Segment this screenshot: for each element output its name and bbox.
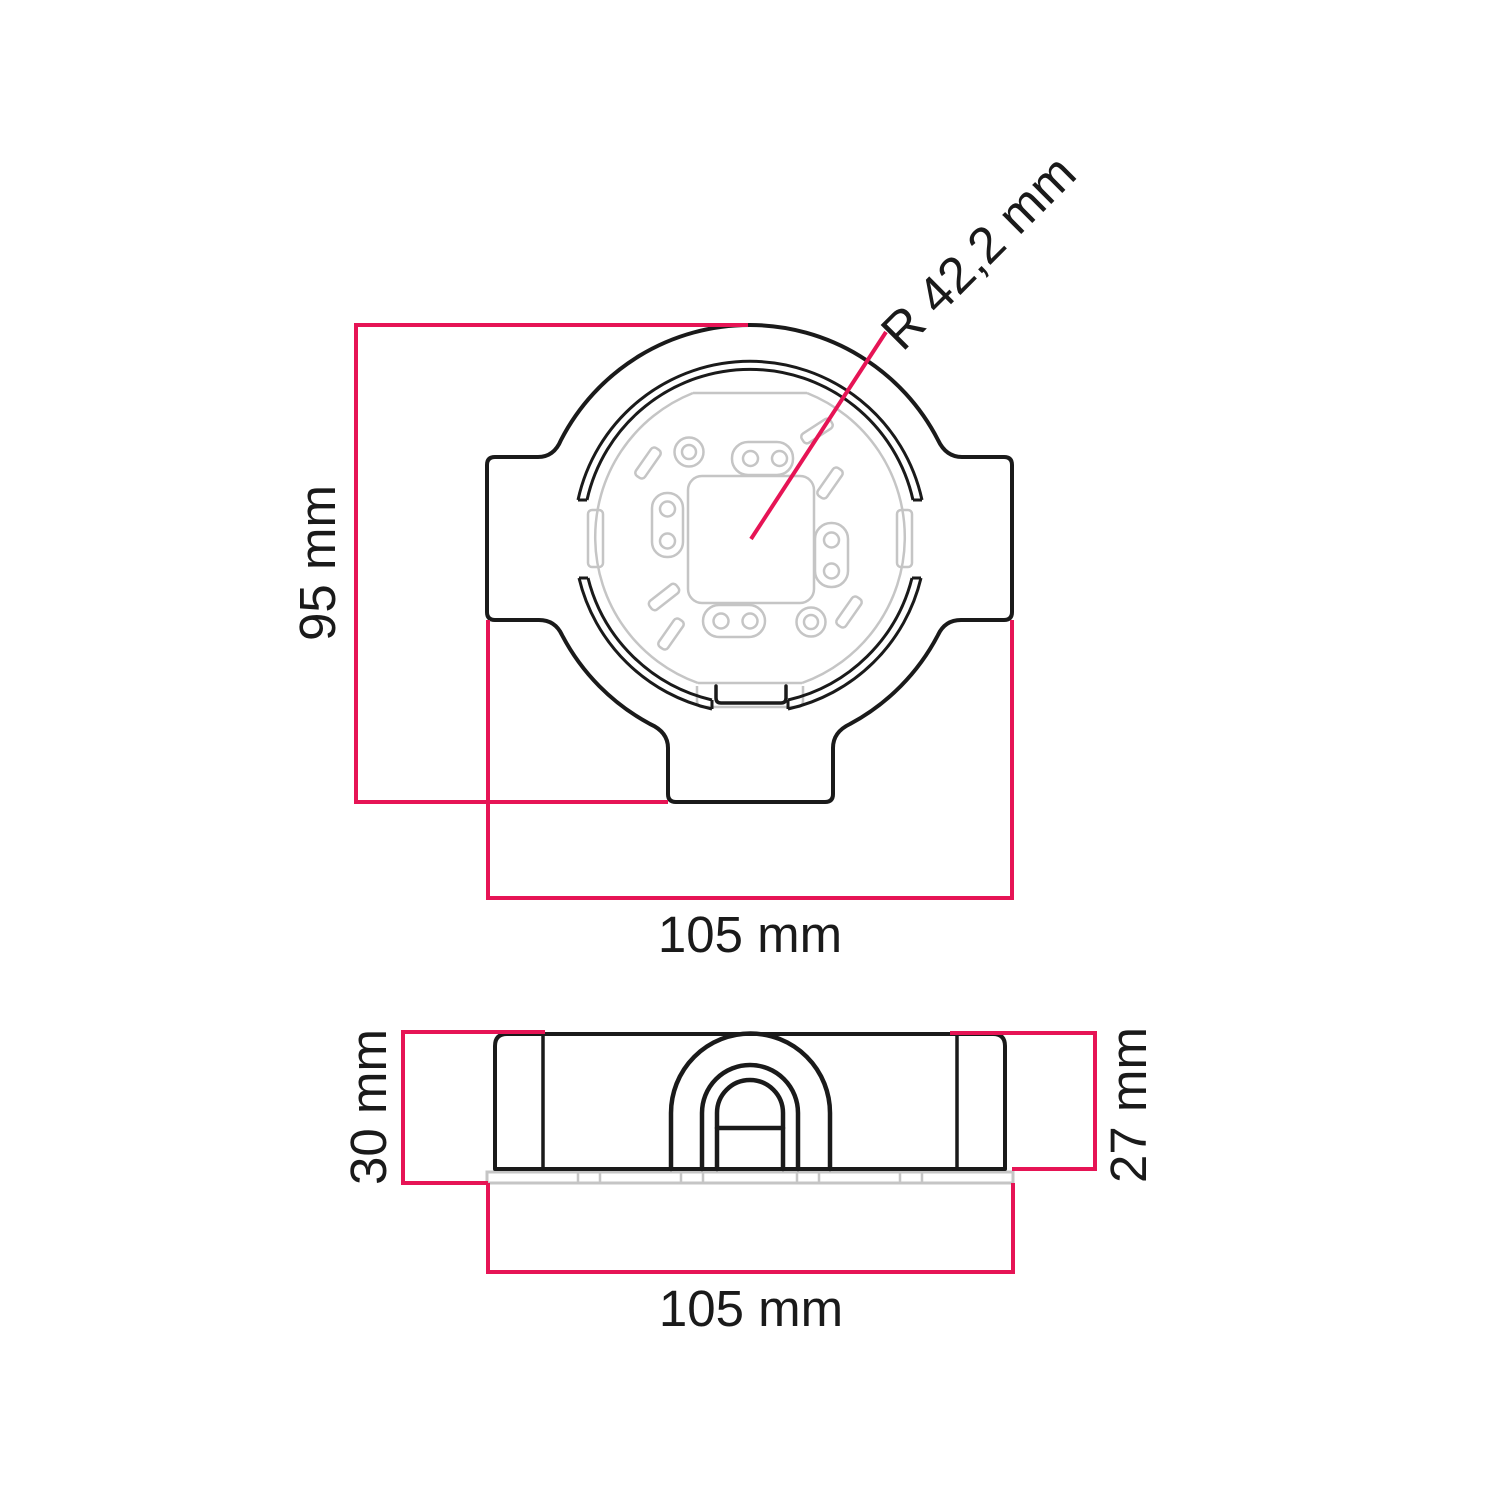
side-plate [487,1172,1013,1183]
top-view [487,325,1012,802]
label-95mm: 95 mm [289,485,346,641]
top-view-body-outline [487,325,1012,802]
label-radius: R 42,2 mm [870,144,1087,361]
side-body-outline [495,1034,1005,1169]
label-27mm: 27 mm [1100,1027,1157,1183]
label-105mm-side: 105 mm [659,1280,843,1337]
dim-line-105mm-side [488,1183,1013,1272]
dimension-diagram: 95 mm 105 mm R 42,2 mm 30 mm 27 mm 105 m… [0,0,1500,1500]
side-view [487,1033,1013,1183]
label-105mm-top: 105 mm [658,906,842,963]
label-30mm: 30 mm [340,1029,397,1185]
